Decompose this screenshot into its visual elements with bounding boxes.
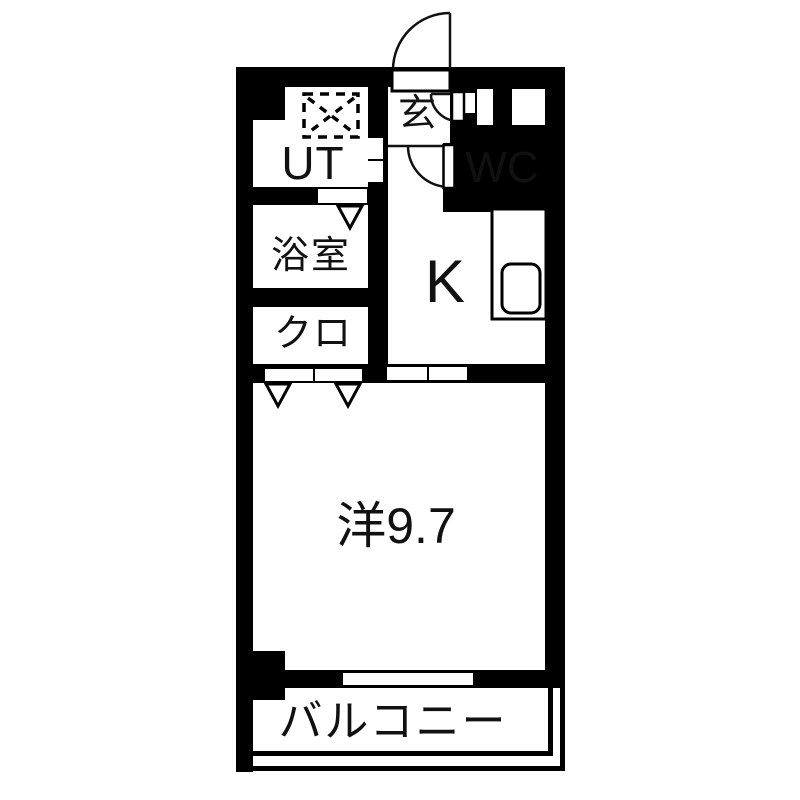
room-label-utility: UT: [281, 140, 344, 186]
floor-plan: 玄 UT WC 浴室 K クロ 洋9.7 バルコニー: [0, 0, 800, 800]
room-label-entrance: 玄: [398, 95, 436, 133]
room-label-western-room: 洋9.7: [336, 501, 456, 551]
washing-machine-pan-icon: [304, 94, 358, 137]
room-label-closet: クロ: [274, 315, 352, 353]
fold-door-triangle-bathroom-icon: [338, 206, 362, 228]
kitchen-sink-icon: [502, 264, 540, 313]
room-label-kitchen: K: [425, 252, 465, 312]
entrance-door-leaf-icon: [392, 70, 450, 91]
room-label-toilet: WC: [465, 146, 538, 190]
fold-door-triangle-closet-right-icon: [336, 384, 360, 406]
hall-door-leaf-icon: [452, 92, 464, 121]
room-label-balcony: バルコニー: [278, 700, 507, 744]
entrance-door-arc-icon: [393, 13, 450, 70]
fold-door-triangle-closet-left-icon: [266, 384, 290, 406]
room-label-bathroom: 浴室: [271, 237, 351, 275]
wc-door-leaf-icon: [444, 145, 455, 188]
